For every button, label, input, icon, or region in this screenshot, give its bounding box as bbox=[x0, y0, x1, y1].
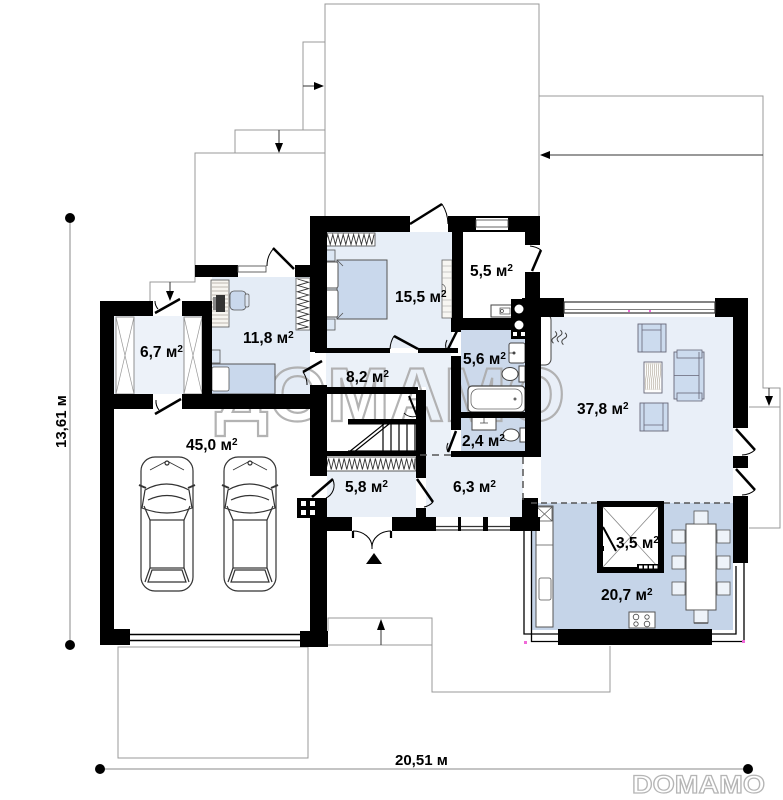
svg-text:45,0 м2: 45,0 м2 bbox=[186, 437, 238, 454]
svg-text:6,3 м2: 6,3 м2 bbox=[453, 479, 496, 496]
svg-text:5,5 м2: 5,5 м2 bbox=[470, 263, 513, 280]
svg-text:6,7 м2: 6,7 м2 bbox=[140, 344, 183, 361]
svg-text:5,6 м2: 5,6 м2 bbox=[463, 351, 506, 368]
svg-text:2,4 м2: 2,4 м2 bbox=[462, 433, 505, 450]
svg-text:3,5 м2: 3,5 м2 bbox=[616, 535, 659, 552]
svg-text:8,2 м2: 8,2 м2 bbox=[346, 369, 389, 386]
svg-text:5,8 м2: 5,8 м2 bbox=[345, 479, 388, 496]
svg-text:37,8 м2: 37,8 м2 bbox=[577, 401, 629, 418]
svg-text:20,7 м2: 20,7 м2 bbox=[601, 587, 653, 604]
svg-text:15,5 м2: 15,5 м2 bbox=[395, 289, 447, 306]
svg-text:13,61 м: 13,61 м bbox=[53, 395, 70, 448]
svg-text:11,8 м2: 11,8 м2 bbox=[243, 330, 294, 347]
svg-text:DOMAMO: DOMAMO bbox=[632, 771, 765, 799]
svg-text:20,51 м: 20,51 м bbox=[395, 752, 448, 769]
